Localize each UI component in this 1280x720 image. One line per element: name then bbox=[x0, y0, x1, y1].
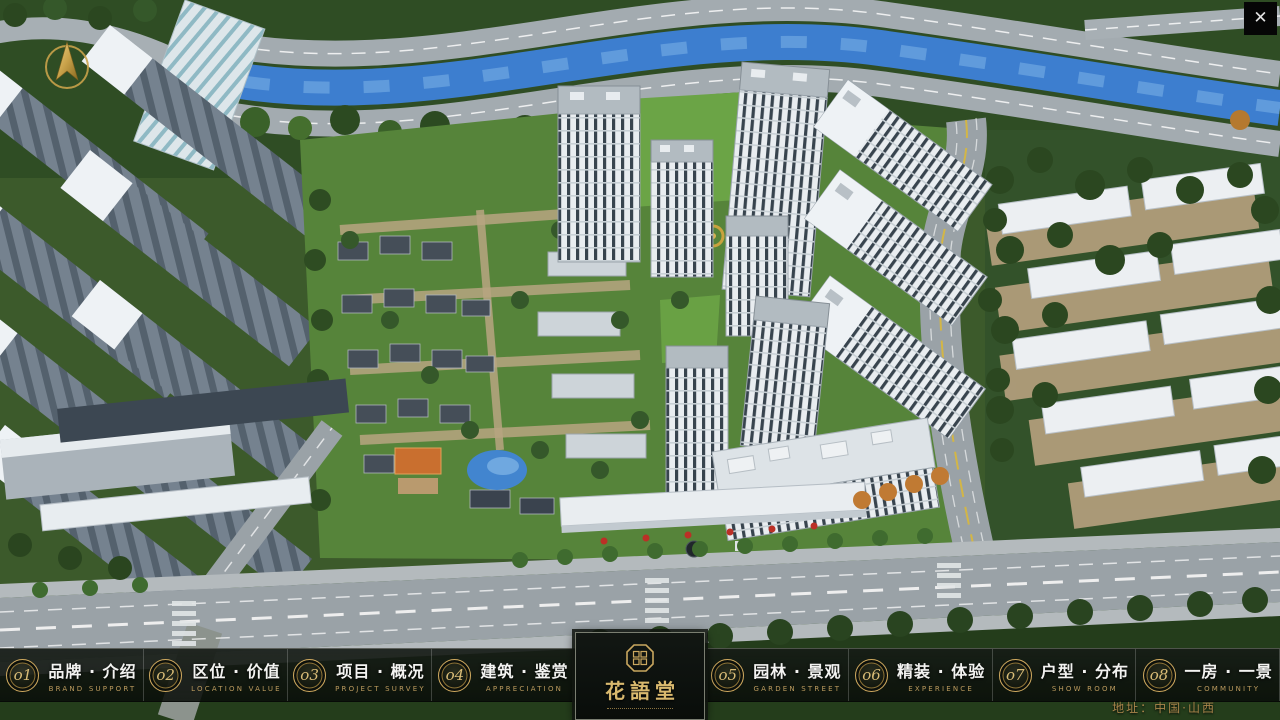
menu-item-subtitle: SHOW ROOM bbox=[1052, 685, 1118, 693]
menu-item-subtitle: GARDEN STREET bbox=[754, 685, 842, 693]
address-text: 地址：中国·山西 bbox=[1112, 699, 1216, 716]
presentation-stage: ✕ o1 品牌 · 介绍BRAND SUPPORT o2 区位 · 价值LOCA… bbox=[0, 0, 1280, 720]
item-number-badge: o6 bbox=[855, 659, 888, 692]
compass-north-indicator bbox=[36, 34, 98, 96]
menu-item-label: 区位 · 价值 bbox=[192, 658, 280, 682]
close-button[interactable]: ✕ bbox=[1244, 2, 1277, 35]
menu-item-label: 精装 · 体验 bbox=[897, 658, 985, 682]
menu-item-deluxe-experience[interactable]: o6 精装 · 体验EXPERIENCE bbox=[848, 649, 992, 701]
masterplan-3d-render bbox=[0, 0, 1280, 720]
menu-group-right: o5 园林 · 景观GARDEN STREET o6 精装 · 体验EXPERI… bbox=[705, 649, 1280, 701]
menu-item-label: 园林 · 景观 bbox=[753, 658, 841, 682]
item-number-badge: o1 bbox=[6, 659, 39, 692]
item-number-badge: o4 bbox=[438, 659, 471, 692]
menu-item-garden-landscape[interactable]: o5 园林 · 景观GARDEN STREET bbox=[705, 649, 848, 701]
menu-item-subtitle: APPRECIATION bbox=[486, 685, 563, 693]
item-number-badge: o3 bbox=[293, 659, 326, 692]
menu-item-subtitle: BRAND SUPPORT bbox=[49, 685, 137, 693]
logo-title: 花語堂 bbox=[600, 675, 680, 704]
bottom-menu-bar: o1 品牌 · 介绍BRAND SUPPORT o2 区位 · 价值LOCATI… bbox=[0, 648, 1280, 702]
menu-item-project-overview[interactable]: o3 项目 · 概况PROJECT SURVEY bbox=[287, 649, 431, 701]
menu-item-subtitle: EXPERIENCE bbox=[908, 685, 974, 693]
item-number: o7 bbox=[1006, 666, 1025, 684]
item-number: o1 bbox=[14, 666, 33, 684]
item-number: o4 bbox=[446, 666, 465, 684]
menu-item-label: 户型 · 分布 bbox=[1041, 658, 1129, 682]
menu-item-subtitle: COMMUNITY bbox=[1197, 685, 1260, 693]
seal-emblem-icon bbox=[625, 643, 655, 673]
menu-item-label: 一房 · 一景 bbox=[1185, 658, 1273, 682]
menu-item-unit-distribution[interactable]: o7 户型 · 分布SHOW ROOM bbox=[992, 649, 1136, 701]
item-number: o6 bbox=[862, 666, 881, 684]
menu-group-left: o1 品牌 · 介绍BRAND SUPPORT o2 区位 · 价值LOCATI… bbox=[0, 649, 575, 701]
menu-item-label: 品牌 · 介绍 bbox=[48, 658, 136, 682]
item-number: o8 bbox=[1150, 666, 1169, 684]
menu-item-subtitle: PROJECT SURVEY bbox=[335, 685, 426, 693]
menu-item-brand-intro[interactable]: o1 品牌 · 介绍BRAND SUPPORT bbox=[0, 649, 143, 701]
logo-subtext-line bbox=[607, 708, 673, 709]
compass-icon bbox=[36, 34, 98, 96]
menu-item-location-value[interactable]: o2 区位 · 价值LOCATION VALUE bbox=[143, 649, 287, 701]
menu-item-one-room-one-view[interactable]: o8 一房 · 一景COMMUNITY bbox=[1135, 649, 1280, 701]
item-number-badge: o8 bbox=[1143, 659, 1176, 692]
menu-item-subtitle: LOCATION VALUE bbox=[191, 685, 282, 693]
item-number-badge: o7 bbox=[999, 659, 1032, 692]
item-number: o3 bbox=[300, 666, 319, 684]
item-number: o5 bbox=[718, 666, 737, 684]
project-logo-panel[interactable]: 花語堂 bbox=[575, 632, 705, 720]
menu-item-architecture-appreciation[interactable]: o4 建筑 · 鉴赏APPRECIATION bbox=[431, 649, 575, 701]
item-number-badge: o2 bbox=[149, 659, 182, 692]
item-number: o2 bbox=[156, 666, 175, 684]
menu-item-label: 项目 · 概况 bbox=[336, 658, 424, 682]
menu-item-label: 建筑 · 鉴赏 bbox=[480, 658, 568, 682]
item-number-badge: o5 bbox=[711, 659, 744, 692]
